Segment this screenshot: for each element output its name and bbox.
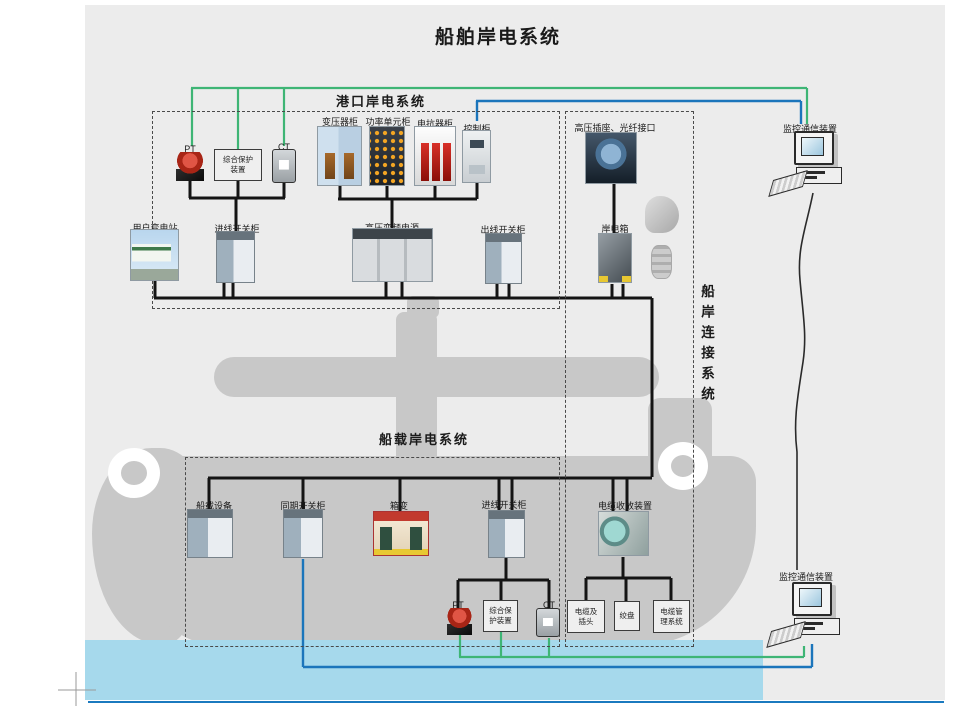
comm-link-line (796, 193, 813, 570)
ct-transformer-image (272, 149, 296, 183)
power-unit-cabinet-image (369, 126, 405, 186)
keyboard-icon (768, 170, 807, 197)
hv-socket-image (585, 132, 637, 184)
ship-incoming-switchgear-image (488, 510, 525, 558)
port-system-label: 港口岸电系统 (336, 91, 426, 110)
diagram-ship-shore-power: 船舶岸电系统 港口岸电系统 船载岸电系统 船岸连接系统 PT 综合保护装置 CT… (0, 0, 968, 709)
monitor-icon (792, 582, 832, 616)
protection-device-box: 综合保护装置 (214, 149, 262, 181)
ship-pt-image (447, 608, 472, 635)
outgoing-switchgear-image (485, 233, 522, 284)
shipboard-equipment-image (187, 509, 233, 558)
monitor-computer-top (770, 131, 846, 197)
cable-reel-image (598, 511, 649, 556)
cable-plug-box: 电缆及插头 (567, 600, 605, 633)
reactor-cabinet-image (414, 126, 456, 186)
ship-ct-image (536, 608, 560, 637)
pt-transformer-image (176, 152, 204, 181)
winch-box: 绞盘 (614, 601, 640, 631)
incoming-switchgear-image (216, 231, 255, 283)
monitor-icon (794, 131, 834, 165)
user-substation-image (130, 229, 179, 281)
control-cabinet-image (462, 130, 491, 183)
ship-system-label: 船载岸电系统 (379, 429, 469, 448)
shore-power-box-image (598, 233, 632, 283)
connection-system-label: 船岸连接系统 (696, 284, 716, 407)
hv-vfd-image (352, 228, 433, 282)
sync-switchgear-image (283, 509, 323, 558)
monitor-computer-bottom (768, 582, 844, 650)
ship-protection-box: 综合保护装置 (483, 600, 518, 632)
connection-system-box (565, 111, 694, 647)
robot-arm-image (645, 196, 679, 233)
transformer-cabinet-image (317, 126, 362, 186)
cable-mgmt-box: 电缆管理系统 (653, 600, 690, 633)
box-transformer-image (373, 511, 429, 556)
page-title: 船舶岸电系统 (435, 22, 635, 49)
cable-spool-image (651, 245, 672, 279)
keyboard-icon (766, 621, 805, 648)
crosshair-mark (58, 672, 96, 706)
